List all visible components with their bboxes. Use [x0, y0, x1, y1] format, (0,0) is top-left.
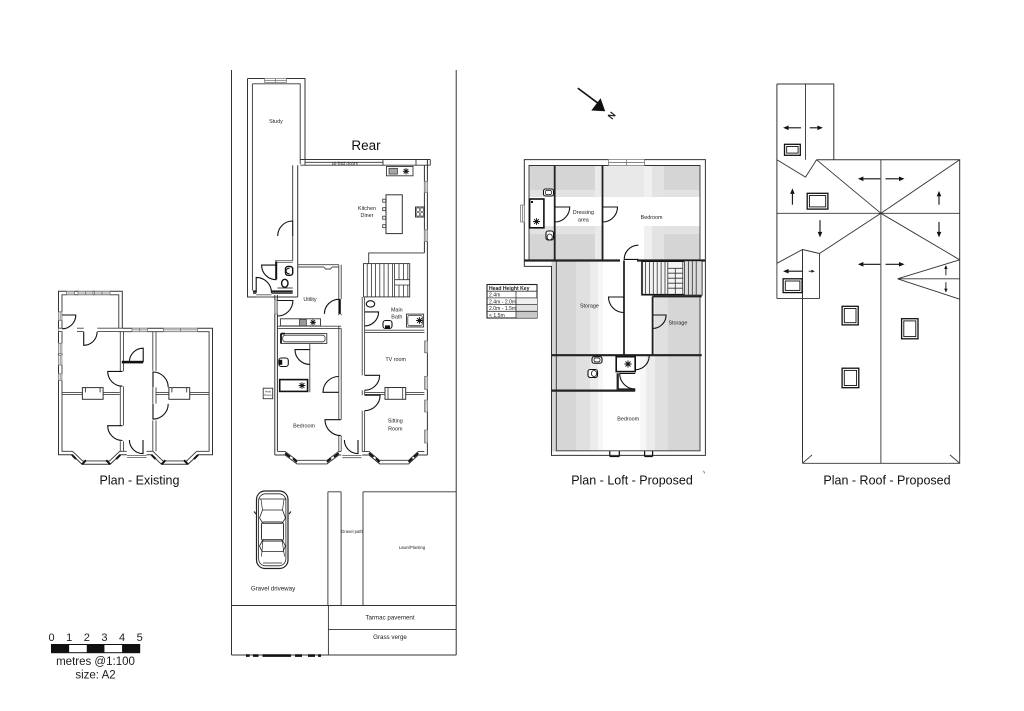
svg-text:< 1.5m: < 1.5m [489, 313, 505, 319]
svg-text:0: 0 [48, 632, 54, 644]
svg-text:Utility: Utility [303, 297, 316, 303]
svg-text:Plan - Existing: Plan - Existing [100, 474, 180, 488]
svg-text:Study: Study [269, 119, 283, 125]
svg-text:Room: Room [388, 427, 403, 433]
svg-text:5: 5 [137, 632, 143, 644]
svg-text:Bedroom: Bedroom [641, 215, 663, 221]
svg-text:2.4m: 2.4m [489, 293, 500, 299]
svg-text:Main: Main [391, 308, 403, 314]
svg-text:1: 1 [66, 632, 72, 644]
svg-text:Gravel path: Gravel path [341, 529, 363, 534]
svg-text:Bath: Bath [391, 315, 402, 321]
svg-text:2.4m - 2.0m: 2.4m - 2.0m [489, 299, 516, 305]
svg-text:3: 3 [101, 632, 107, 644]
svg-text:metres @1:100: metres @1:100 [56, 656, 135, 668]
svg-text:TV room: TV room [385, 357, 406, 363]
svg-text:Tarmac pavement: Tarmac pavement [365, 615, 414, 622]
svg-text:Pump: Pump [264, 393, 272, 397]
svg-text:2: 2 [84, 632, 90, 644]
svg-text:Plan - Loft - Proposed: Plan - Loft - Proposed [571, 474, 693, 488]
svg-text:Kitchen: Kitchen [358, 206, 376, 212]
svg-text:Bedroom: Bedroom [293, 424, 315, 430]
svg-text:Rear: Rear [351, 138, 381, 153]
svg-text:Head Height Key: Head Height Key [489, 286, 530, 292]
svg-text:Sitting: Sitting [388, 419, 403, 425]
svg-text:Bi-fold doors: Bi-fold doors [332, 161, 358, 166]
svg-text:Plan - Roof - Proposed: Plan - Roof - Proposed [823, 474, 950, 488]
svg-text:Storage: Storage [668, 321, 687, 327]
svg-text:Bedroom: Bedroom [617, 417, 639, 423]
svg-text:size: A2: size: A2 [75, 670, 115, 682]
svg-text:Lawn/Planting: Lawn/Planting [399, 545, 426, 550]
svg-text:Grass verge: Grass verge [373, 634, 407, 641]
svg-text:Storage: Storage [580, 304, 599, 310]
svg-text:Gravel driveway: Gravel driveway [251, 586, 296, 593]
svg-text:2.0m - 1.5m: 2.0m - 1.5m [489, 306, 516, 312]
svg-text:N: N [606, 110, 618, 121]
svg-text:Dressing: Dressing [573, 210, 594, 216]
svg-text:area: area [578, 218, 589, 224]
svg-text:4: 4 [119, 632, 125, 644]
svg-text:Diner: Diner [361, 213, 374, 219]
